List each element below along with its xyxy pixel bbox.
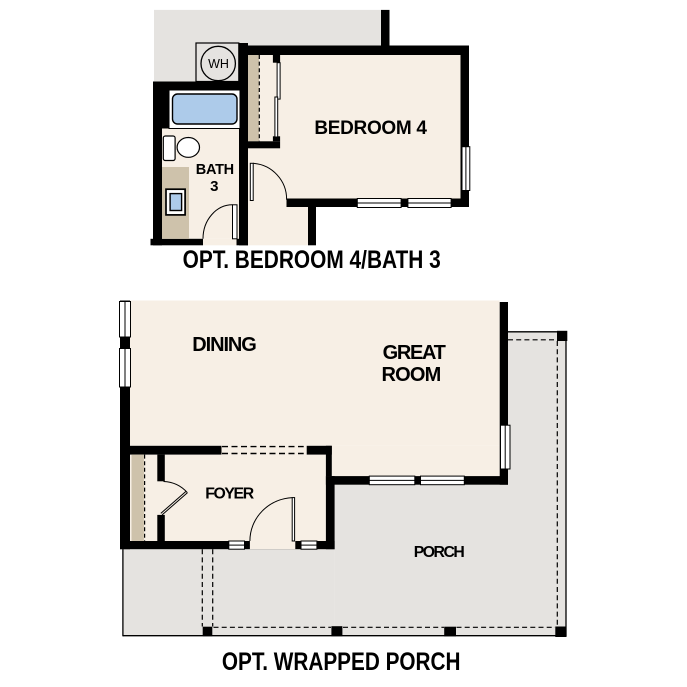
svg-text:BATH: BATH [196, 162, 234, 178]
svg-text:ROOM: ROOM [381, 364, 440, 386]
svg-text:PORCH: PORCH [414, 544, 465, 561]
svg-text:BEDROOM 4: BEDROOM 4 [314, 118, 427, 139]
svg-text:GREAT: GREAT [383, 342, 446, 364]
svg-text:WH: WH [208, 57, 229, 71]
svg-text:3: 3 [210, 178, 218, 195]
svg-text:FOYER: FOYER [205, 486, 254, 503]
svg-text:DINING: DINING [192, 334, 256, 356]
svg-text:OPT. WRAPPED PORCH: OPT. WRAPPED PORCH [222, 647, 461, 675]
svg-text:OPT. BEDROOM 4/BATH 3: OPT. BEDROOM 4/BATH 3 [183, 245, 441, 273]
